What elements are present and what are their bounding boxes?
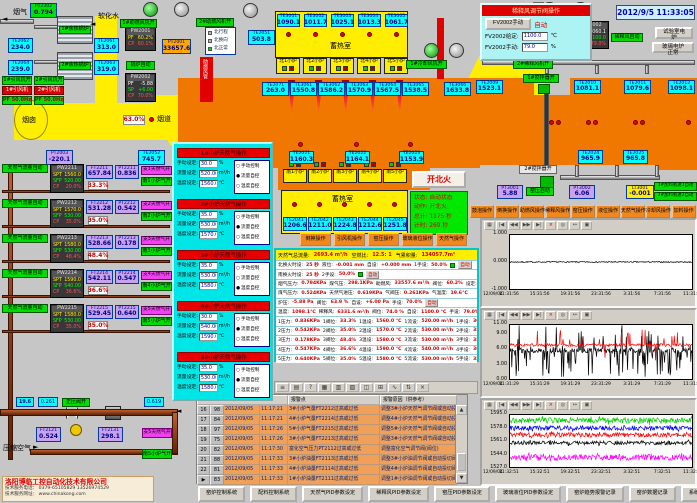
regen-valve-dot-icon (367, 32, 372, 37)
alarm-row[interactable]: 21882012/09/0511:17:333#小炉油量FT2113过高或过低调… (197, 455, 467, 465)
controller-pw2215-title: PW2215 (52, 306, 82, 312)
data-label: 5手设: (456, 356, 470, 362)
sensor-lt3001-value: -0.001 (629, 191, 650, 197)
toolbar-icon-5[interactable]: ▧ (346, 383, 359, 392)
op-button-4[interactable]: 窑压操作 (571, 205, 595, 218)
company-name: 洛阳博临工控自动化技术有限公司 (5, 478, 151, 486)
data-label: 2压力: (278, 328, 292, 334)
flue-gas-label: 烟气 (13, 9, 27, 16)
data-label: 阀位: (372, 309, 383, 315)
chart-toolbar-icon-6[interactable]: ◎ (557, 221, 568, 230)
data-label: 5阀位: (323, 356, 337, 362)
gas-mode-option[interactable]: ○手动控制 (236, 216, 268, 221)
chart-toolbar: ▦|◀◀◀▶▶▶|×◎↔▣ (484, 401, 592, 410)
gas-mode-radios: ○手动控制○流量自控●温度自控 (234, 262, 270, 296)
toolbar-icon-2[interactable]: ? (304, 383, 317, 392)
data-value: 6331.6 m³/h (337, 310, 369, 315)
company-web: 技术服务网址： www.chinakong.com (5, 492, 151, 498)
gas-field-input[interactable] (199, 160, 218, 168)
sensor-pt3002: PT30026.06 (569, 185, 595, 199)
data-value: 33.3% (340, 319, 356, 324)
gas-field-input[interactable] (199, 384, 218, 392)
data-label: 2阀位: (323, 328, 337, 334)
gas-field-unit: m³/h (219, 172, 230, 177)
sensor-ft2213-value: 528.66 (88, 241, 111, 247)
fv2002-manual-button[interactable]: FV2002手动 (485, 18, 531, 30)
alarm-row[interactable]: 19752012/09/0511:17:263#小炉气量FT2213过高或过低调… (197, 435, 467, 445)
op-button-center-3[interactable]: 玻璃液位操作 (402, 233, 433, 246)
sensor-te3065-value: 1538.5 (404, 88, 427, 94)
fv2002-manual-input[interactable] (522, 43, 548, 52)
gas-mode-option[interactable]: ●温度自控 (236, 287, 268, 292)
chart-toolbar-icon-4[interactable]: ▶| (533, 311, 544, 320)
sensor-pt2215: PT22150.640 (115, 305, 139, 319)
nav-button-7[interactable]: 窑炉数据记录 (629, 486, 676, 502)
chart-time-label: 3:31:56 (623, 293, 640, 297)
gas-field-unit: ℃ (219, 386, 224, 391)
mode-item-2[interactable]: 北正常 (208, 47, 233, 52)
chart-toolbar-icon-3[interactable]: ▶▶ (521, 401, 533, 410)
alarm-reason: 调整3#小炉油调节阀或自动投切阀 (380, 455, 457, 465)
data-value: 134057.7m³ (421, 252, 455, 258)
chart-time-label: 19:31:56 (560, 293, 580, 297)
gas-mode-radios: ○手动控制●流量自控○温度自控 (234, 313, 270, 347)
compressed-air-arrow-icon: ► (33, 444, 38, 451)
chart-toolbar-icon-5[interactable]: × (545, 401, 556, 410)
toolbar-icon-0[interactable]: ≡ (276, 383, 289, 392)
chart-plot-area (509, 414, 693, 468)
gas-mode-option[interactable]: ●流量自控 (236, 226, 268, 231)
data-label: 1手设: (414, 262, 428, 268)
chart-time-label: 7:32:51 (654, 471, 671, 475)
nav-button-6[interactable]: 窑炉趋势报警记录 (566, 486, 624, 502)
datetime-display: 2012/9/5 11:33:05 (616, 5, 695, 20)
scroll-thumb[interactable] (457, 453, 466, 471)
chart-toolbar: ▦|◀◀◀▶▶▶|×◎↔▣ (484, 221, 592, 230)
op-button-0[interactable]: 鼓泡操作 (470, 205, 494, 218)
alarm-point: 富化空气压力PT2112过高或过低 (288, 445, 380, 455)
data-row-8: 3压力:0.178KPa3阀位:48.4%3温设:1580.0 ℃3流设:530… (276, 335, 477, 344)
south-dot-icon (342, 202, 347, 207)
burner-dot-icon (640, 120, 645, 125)
radio-icon: ○ (236, 236, 240, 241)
op-button-center-0[interactable]: 倒换操作 (300, 233, 331, 246)
fv2002-setpoint-unit: ℃ (551, 33, 557, 39)
indicator-green-icon (336, 66, 341, 71)
controller-pw2215-row-2-key: CP (53, 325, 59, 331)
chart-time-label: 3:32:51 (623, 471, 640, 475)
indicator-red-icon (397, 66, 402, 71)
data-label: 自设: (407, 309, 418, 315)
gas-mode-option[interactable]: ○流量自控 (236, 277, 268, 282)
gas-mode-option[interactable]: ○温度自控 (236, 236, 268, 241)
fan-icon-0 (143, 2, 158, 17)
op-button-center-4[interactable]: 天然气操作 (436, 233, 467, 246)
sensor-ft2213: FT2213528.66 (86, 235, 113, 249)
gas-field-label: 手动设定: (177, 315, 198, 320)
mode-checkbox-icon[interactable] (208, 39, 212, 43)
auto-indicator-icon (358, 272, 363, 277)
data-label: 2手设: (456, 328, 470, 334)
sensor-te3002: TE30021011.7 (304, 14, 327, 27)
furnace-gas-open-3: 南3小炉气开 (141, 247, 172, 256)
data-label: 1流设: (404, 319, 418, 325)
mode-label: 北正常 (214, 47, 228, 52)
gas-mode-option[interactable]: ○温度自控 (236, 185, 268, 190)
chart-time-label: 23:31:29 (591, 383, 611, 387)
alarm-row[interactable]: ▶832012/09/0511:17:331#小炉油量FT2111过高或过低调整… (197, 475, 467, 485)
positive-valve-open-flag: 正压阀开 (62, 398, 90, 407)
data-value: -0.001 mm (336, 263, 364, 268)
op-button-6[interactable]: 天然气操作 (621, 205, 645, 218)
controller-pw2001-row-1: CP60.1% (127, 42, 154, 48)
radio-icon: ○ (236, 216, 240, 221)
data-label: 液位: (322, 262, 333, 268)
alarm-reason: 调整1#小炉油调节阀或自动投切阀 (380, 475, 457, 485)
alarm-toolbar: ≡▤?▦▥▧◫⊞∿⇅× (274, 381, 478, 394)
chart-ytick: 3.00 (482, 363, 507, 368)
toolbar-icon-7[interactable]: ⊞ (374, 383, 387, 392)
indicator-green-icon (389, 162, 394, 167)
gas-field-input[interactable] (199, 272, 218, 280)
data-value: 0.640KPa (295, 357, 320, 362)
gas-popup-section-4: 4#小炉天然气操作手动设定:%流量设定:m³/h温度设定:℃○手动控制●流量自控… (177, 301, 270, 349)
chart-toolbar-icon-1[interactable]: |◀ (496, 401, 507, 410)
gas-field-label: 温度设定: (177, 386, 198, 391)
chart-toolbar-icon-1[interactable]: |◀ (496, 311, 507, 320)
nav-button-2[interactable]: 天然气PID参数设定 (302, 486, 363, 502)
gas-field-label: 流量设定: (177, 223, 198, 228)
pipe-inpress: 0.619 (144, 397, 164, 407)
gas-mode-option[interactable]: ●流量自控 (236, 379, 268, 384)
sensor-pt2214-value: 0.547 (118, 276, 137, 282)
sensor-pt2003-value: -220.1 (49, 157, 70, 163)
gas-mode-option[interactable]: ○手动控制 (236, 267, 268, 272)
north-furnace-indicators (363, 66, 375, 71)
alarm-row[interactable]: 17842012/09/0511:17:214#小炉气量FT2214过高或过低调… (197, 415, 467, 425)
chart-toolbar-icon-0[interactable]: ▦ (484, 311, 495, 320)
gas-mode-label: 流量自控 (241, 277, 259, 282)
alarm-header-point: 报警点 (288, 395, 380, 405)
gas-mode-option[interactable]: ○温度自控 (236, 389, 268, 394)
chart-toolbar-icon-6[interactable]: ◎ (557, 401, 568, 410)
sensor-te2022: TE20221164.1 (345, 151, 370, 164)
data-value: 35.0% (473, 338, 477, 343)
gas-flow-arrow-icon: ◄ (176, 408, 181, 415)
sensor-pt2215-value: 0.640 (118, 311, 137, 317)
data-label: 3手设: (456, 337, 470, 343)
ignite-north-button[interactable]: 开北火 (412, 171, 466, 188)
toolbar-icon-9[interactable]: ⇅ (402, 383, 415, 392)
toolbar-icon-3[interactable]: ▦ (318, 383, 331, 392)
data-mode-tag[interactable]: 自动 (458, 261, 471, 269)
auto-indicator-icon (450, 263, 455, 268)
controller-pw2002-row-2-val: 70.0% (138, 94, 153, 100)
status-row-2: 总计: 1175 秒 (414, 215, 464, 221)
alarm-row[interactable]: 22812012/09/0511:17:334#小炉油量FT2114过高或过低调… (197, 465, 467, 475)
north-furnace-indicators (336, 66, 348, 71)
sensor-te2062-value: 234.0 (11, 45, 30, 51)
alarm-row-code: 84 (210, 415, 224, 425)
sensor-te3066: TE30661633.8 (444, 82, 471, 96)
alarm-row[interactable]: 20822012/09/0511:17:30富化空气压力PT2112过高或过低调… (197, 445, 467, 455)
hmi-furnace-overview-screen: 烟气 ◄ 软化水 ◄ 烟囱 烟道 蓄热室 蓄热室 助燃风管 压缩空气 ► ◄ 2… (0, 0, 697, 503)
data-value: 1560.0 ℃ (376, 319, 401, 324)
alarm-row-marker: 18 (197, 425, 210, 435)
op-button-7[interactable]: 冷却风操作 (646, 205, 670, 218)
fv2002-manual-label: FV2002手动: (485, 43, 519, 51)
chart-toolbar-icon-5[interactable]: × (545, 311, 556, 320)
data-value: 74.0 % (386, 310, 404, 315)
mode-item-1[interactable]: 北换向 (208, 39, 233, 44)
alarm-reason: 调整5#小炉天然气调节阀或自动投切阀 (380, 425, 457, 435)
gas-mode-label: 温度自控 (241, 389, 259, 394)
gas-field-input[interactable] (199, 170, 218, 178)
alarm-row[interactable]: 16982012/09/0511:17:213#小炉气量FT2212过高或过低调… (197, 405, 467, 415)
chart-ytick: 6.00 (482, 347, 507, 352)
gas-field-label: 温度设定: (177, 182, 198, 187)
regenerator-north-label: 蓄热室 (330, 43, 351, 50)
controller-pw2002: PW2002PF-5.88SP+6.00CP70.0% (125, 73, 156, 102)
fv2002-setpoint-label: FV2002给定: (485, 32, 519, 40)
data-value: 48.4% (340, 338, 356, 343)
chart-toolbar-icon-7[interactable]: ↔ (569, 401, 580, 410)
radio-icon: ● (236, 175, 240, 180)
glass-furnace-status-button[interactable]: 玻璃电炉正常 (652, 42, 694, 53)
alarm-scrollbar[interactable]: ▲▼ (455, 405, 467, 483)
gas-field-input[interactable] (199, 374, 218, 382)
gas-field-unit: m³/h (219, 325, 230, 330)
gas-field-input[interactable] (199, 333, 218, 341)
id-fan-status-2: 2#引风机开 (34, 76, 64, 85)
toolbar-icon-10[interactable]: × (416, 383, 429, 392)
status-row-0: 状态: 自动状态 (414, 196, 464, 202)
gas-mode-option[interactable]: ○手动控制 (236, 318, 268, 323)
gas-field-unit: % (219, 366, 224, 371)
data-label: 空燃比: (352, 252, 369, 259)
op-button-2[interactable]: 助燃风操作 (520, 205, 544, 218)
chart-ytick: 11.00 (482, 322, 507, 327)
data-label: 4流设: (404, 347, 418, 353)
gas-field-input[interactable] (199, 364, 218, 372)
sensor-te2071: TE2071263.0 (262, 82, 289, 96)
scroll-up-icon[interactable]: ▲ (456, 405, 467, 415)
op-button-3[interactable]: 稀释风操作 (546, 205, 570, 218)
toolbar-icon-4[interactable]: ▥ (332, 383, 345, 392)
south-furnace-1: 南1小炉 (283, 169, 307, 183)
mode-label: 北行程 (214, 31, 228, 36)
gas-mode-option[interactable]: ○手动控制 (236, 369, 268, 374)
data-label: 5流设: (404, 356, 418, 362)
toolbar-icon-1[interactable]: ▤ (290, 383, 303, 392)
toolbar-icon-6[interactable]: ◫ (360, 383, 373, 392)
data-value: +6.00 Pa (365, 300, 389, 305)
chart-toolbar-icon-8[interactable]: ▣ (581, 311, 592, 320)
controller-pw2212-row-2-val: 35.0% (66, 220, 81, 226)
nav-button-5[interactable]: 玻璃液位PID参数设定 (495, 486, 561, 502)
gas-branch5-open: 支5天然气开 (142, 428, 172, 438)
chart-toolbar-icon-1[interactable]: |◀ (496, 221, 507, 230)
data-value: 19.6℃ (451, 291, 468, 296)
controller-pw2212-row-2: CP35.0% (52, 220, 82, 226)
chart-toolbar-icon-7[interactable]: ↔ (569, 311, 580, 320)
sensor-te3002-value: 1011.7 (304, 20, 327, 26)
chart-toolbar-icon-4[interactable]: ▶| (533, 401, 544, 410)
chart-time-label: 3:31:29 (623, 383, 640, 387)
boiler-auto-flag: 锅炉自动 (126, 61, 155, 70)
dilution-popup-title: 稀释风调节阀操作 (482, 5, 590, 16)
gas-branch-open-5: 支5天然气开 (141, 306, 172, 315)
chart-toolbar: ▦|◀◀◀▶▶▶|×◎↔▣ (484, 311, 592, 320)
mode-checkbox-icon[interactable] (208, 47, 212, 51)
gas-branch-open-3: 支3天然气开 (141, 236, 172, 245)
gas-mode-option[interactable]: ●流量自控 (236, 328, 268, 333)
gas-field-input[interactable] (199, 231, 218, 239)
gas-field-unit: m³/h (219, 274, 230, 279)
indicator-red-icon (316, 66, 321, 71)
id-fan-status-1: 1#引风机开 (2, 76, 32, 85)
sensor-te2063: TE2063319.0 (94, 60, 119, 75)
sensor-te2010-value: 1081.1 (576, 86, 599, 92)
gas-field-label: 温度设定: (177, 233, 198, 238)
gas-field-input[interactable] (199, 313, 218, 321)
chart-toolbar-icon-3[interactable]: ▶▶ (521, 221, 533, 230)
gas-branch-pipe (2, 225, 170, 228)
data-mode-tag[interactable]: 自动 (366, 271, 379, 279)
chart-toolbar-icon-8[interactable]: ▣ (581, 221, 592, 230)
controller-pw2001-row-1-key: CP (128, 42, 134, 48)
op-button-8[interactable]: 加料操作 (672, 205, 696, 218)
data-label: 南换火时设: (278, 272, 303, 278)
mode-checkbox-icon[interactable] (208, 31, 212, 35)
chart-toolbar-icon-4[interactable]: ▶| (533, 221, 544, 230)
indicator-red-icon (321, 162, 326, 167)
alarm-date: 2012/09/05 (224, 435, 260, 445)
chart-time-label: 11:32:51 (499, 471, 519, 475)
fan-icon-1 (174, 2, 189, 17)
gas-field-input[interactable] (199, 262, 218, 270)
sensor-lt3001: LT3001-0.001 (626, 185, 654, 199)
chart-toolbar-icon-2[interactable]: ◀◀ (508, 401, 520, 410)
sensor-te2061-value: 313.0 (97, 45, 116, 51)
radio-icon: ● (236, 379, 240, 384)
chart-toolbar-icon-6[interactable]: ◎ (557, 311, 568, 320)
test-furnace-button[interactable]: 试验室电炉 (655, 27, 693, 39)
gas-mode-label: 手动控制 (241, 165, 259, 170)
scroll-down-icon[interactable]: ▼ (456, 473, 467, 483)
op-button-1[interactable]: 倒换操作 (495, 205, 519, 218)
alarm-date: 2012/09/05 (224, 415, 260, 425)
fv2002-setpoint-input[interactable] (522, 32, 548, 41)
gas-popup-section-title: 2#小炉天然气操作 (177, 199, 270, 209)
gas-field-unit: ℃ (219, 335, 224, 340)
fan-icon-4 (449, 43, 464, 58)
toolbar-icon-8[interactable]: ∿ (388, 383, 401, 392)
chart-toolbar-icon-3[interactable]: ▶▶ (521, 311, 533, 320)
chart-plot-area (509, 234, 693, 290)
chart-toolbar-icon-2[interactable]: ◀◀ (508, 221, 520, 230)
chart-toolbar-icon-8[interactable]: ▣ (581, 401, 592, 410)
data-label: 1手设: (456, 319, 470, 325)
boiler-label: 2#余热锅炉 (59, 62, 90, 70)
sensor-te3064: TE30641567.5 (374, 82, 401, 96)
gas-popup-section-title: 5#小炉天然气操作 (177, 352, 270, 362)
alarm-point: 4#小炉气量FT2214过高或过低 (288, 415, 380, 425)
gas-mode-option[interactable]: ○温度自控 (236, 338, 268, 343)
data-row-9: 4压力:0.547KPa4阀位:36.6%4温设:1590.0 ℃4流设:540… (276, 345, 477, 354)
chart-toolbar-icon-0[interactable]: ▦ (484, 221, 495, 230)
gas-mode-option[interactable]: ○手动控制 (236, 165, 268, 170)
gas-field-input[interactable] (199, 180, 218, 188)
controller-pw2213-row-2-val: 48.4% (66, 255, 81, 261)
sensor-te2051: TE2051503.8 (248, 30, 275, 45)
chart-toolbar-icon-5[interactable]: × (545, 221, 556, 230)
chart-toolbar-icon-0[interactable]: ▦ (484, 401, 495, 410)
chart-toolbar-icon-7[interactable]: ↔ (569, 221, 580, 230)
chimney-label: 烟囱 (22, 117, 36, 124)
gas-field-input[interactable] (199, 282, 218, 290)
op-button-5[interactable]: 液位操作 (596, 205, 620, 218)
data-value: 35.0% (340, 328, 356, 333)
cooling-fan-status: 1#冷却风机开 (406, 60, 447, 69)
nav-button-0[interactable]: 窑炉控制系统 (198, 486, 245, 502)
pipe-vpress: 0.261 (38, 397, 58, 407)
data-label: 自设: (367, 262, 378, 268)
boiler-label: 1#余热锅炉 (59, 26, 90, 34)
chart-time-label: 7:31:29 (654, 383, 671, 387)
nav-button-3[interactable]: 稀释风PID参数设定 (368, 486, 429, 502)
data-value: 520.00 m³/h (421, 319, 453, 324)
sensor-te3004-value: 1013.3 (358, 20, 381, 26)
gas-mode-label: 手动控制 (241, 369, 259, 374)
chart-ytick: 9.00 (482, 332, 507, 337)
north-furnace-5: 北5小炉 (384, 58, 408, 74)
gas-mode-option[interactable]: ●流量自控 (236, 175, 268, 180)
data-mode-tag[interactable]: 自动 (425, 299, 438, 307)
gas-field-input[interactable] (199, 211, 218, 219)
chart-toolbar-icon-2[interactable]: ◀◀ (508, 311, 520, 320)
radio-icon: ○ (236, 165, 240, 170)
nav-button-8[interactable]: 系统报警点设定 (681, 486, 697, 502)
mode-label: 北换向 (214, 39, 228, 44)
nav-button-4[interactable]: 窑压PID参数设定 (434, 486, 490, 502)
gas-field-input[interactable] (199, 323, 218, 331)
op-button-center-1[interactable]: 引风机操作 (334, 233, 365, 246)
data-value: 0.619KPa (357, 291, 382, 296)
sensor-te2012-value: 1098.1 (670, 86, 693, 92)
gas-field-input[interactable] (199, 221, 218, 229)
op-button-center-2[interactable]: 窑压操作 (368, 233, 399, 246)
nav-button-1[interactable]: 配料控制系统 (250, 486, 297, 502)
north-furnace-indicators (309, 66, 321, 71)
indicator-green-icon (390, 66, 395, 71)
data-label: 温度: (278, 309, 289, 315)
sensor-te2023: TE20231153.9 (399, 151, 424, 164)
gas-popup-section-2: 2#小炉天然气操作手动设定:%流量设定:m³/h温度设定:℃○手动控制●流量自控… (177, 199, 270, 247)
sensor-te3001-value: 1090.1 (277, 20, 300, 26)
process-data-panel: 天然气总流量:2693.4 m³/h空燃比:12.5: 1气累积量:134057… (274, 248, 479, 362)
gas-field-unit: ℃ (219, 284, 224, 289)
alarm-row[interactable]: 18972012/09/0511:17:265#小炉气量FT2215过高或过低调… (197, 425, 467, 435)
data-label: 炉压: (278, 300, 289, 306)
gas-valve-percent-1: 33.3% (88, 181, 108, 190)
gas-auto-flag-1: 天然气流量自动 (2, 164, 48, 173)
gas-popup-section-title: 1#小炉天然气操作 (177, 148, 270, 158)
mode-item-0[interactable]: 北行程 (208, 31, 233, 36)
data-label: 1压力: (278, 319, 292, 325)
gas-mode-label: 手动控制 (241, 267, 259, 272)
sensor-pt2213-value: 0.178 (118, 241, 137, 247)
